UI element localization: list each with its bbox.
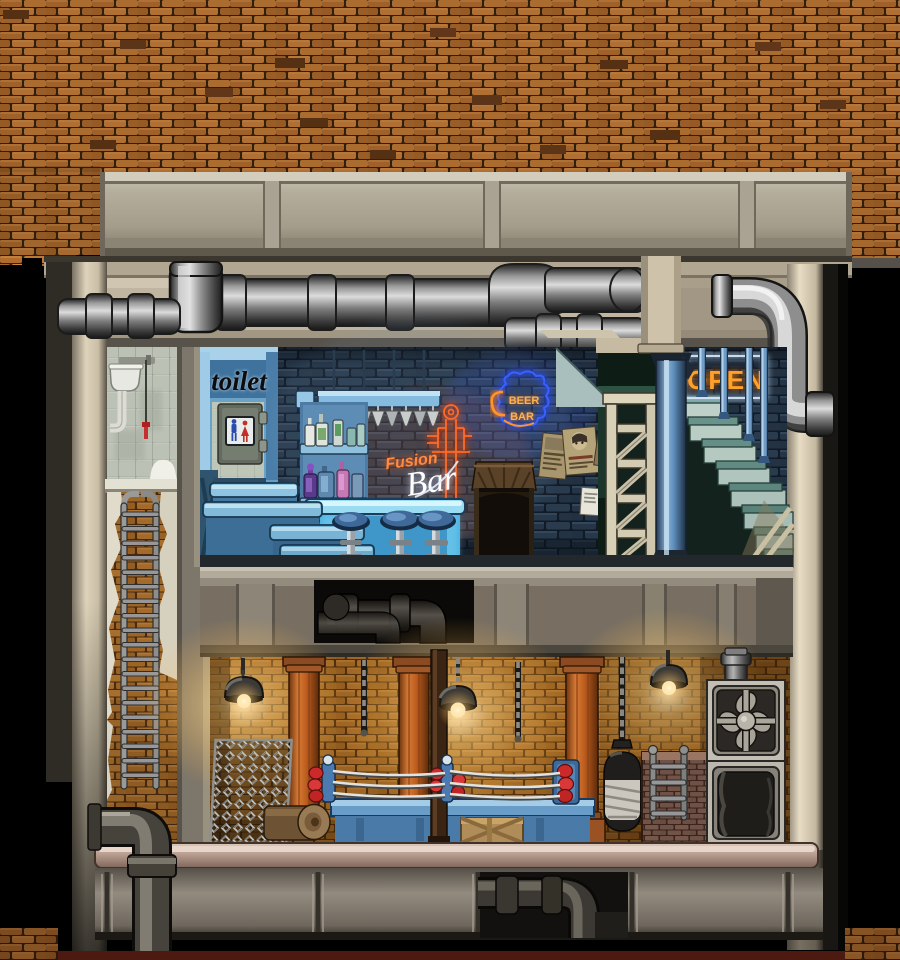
svg-text:BAR: BAR [510,411,534,423]
svg-text:BEER: BEER [509,395,540,407]
svg-text:toilet: toilet [211,366,268,396]
